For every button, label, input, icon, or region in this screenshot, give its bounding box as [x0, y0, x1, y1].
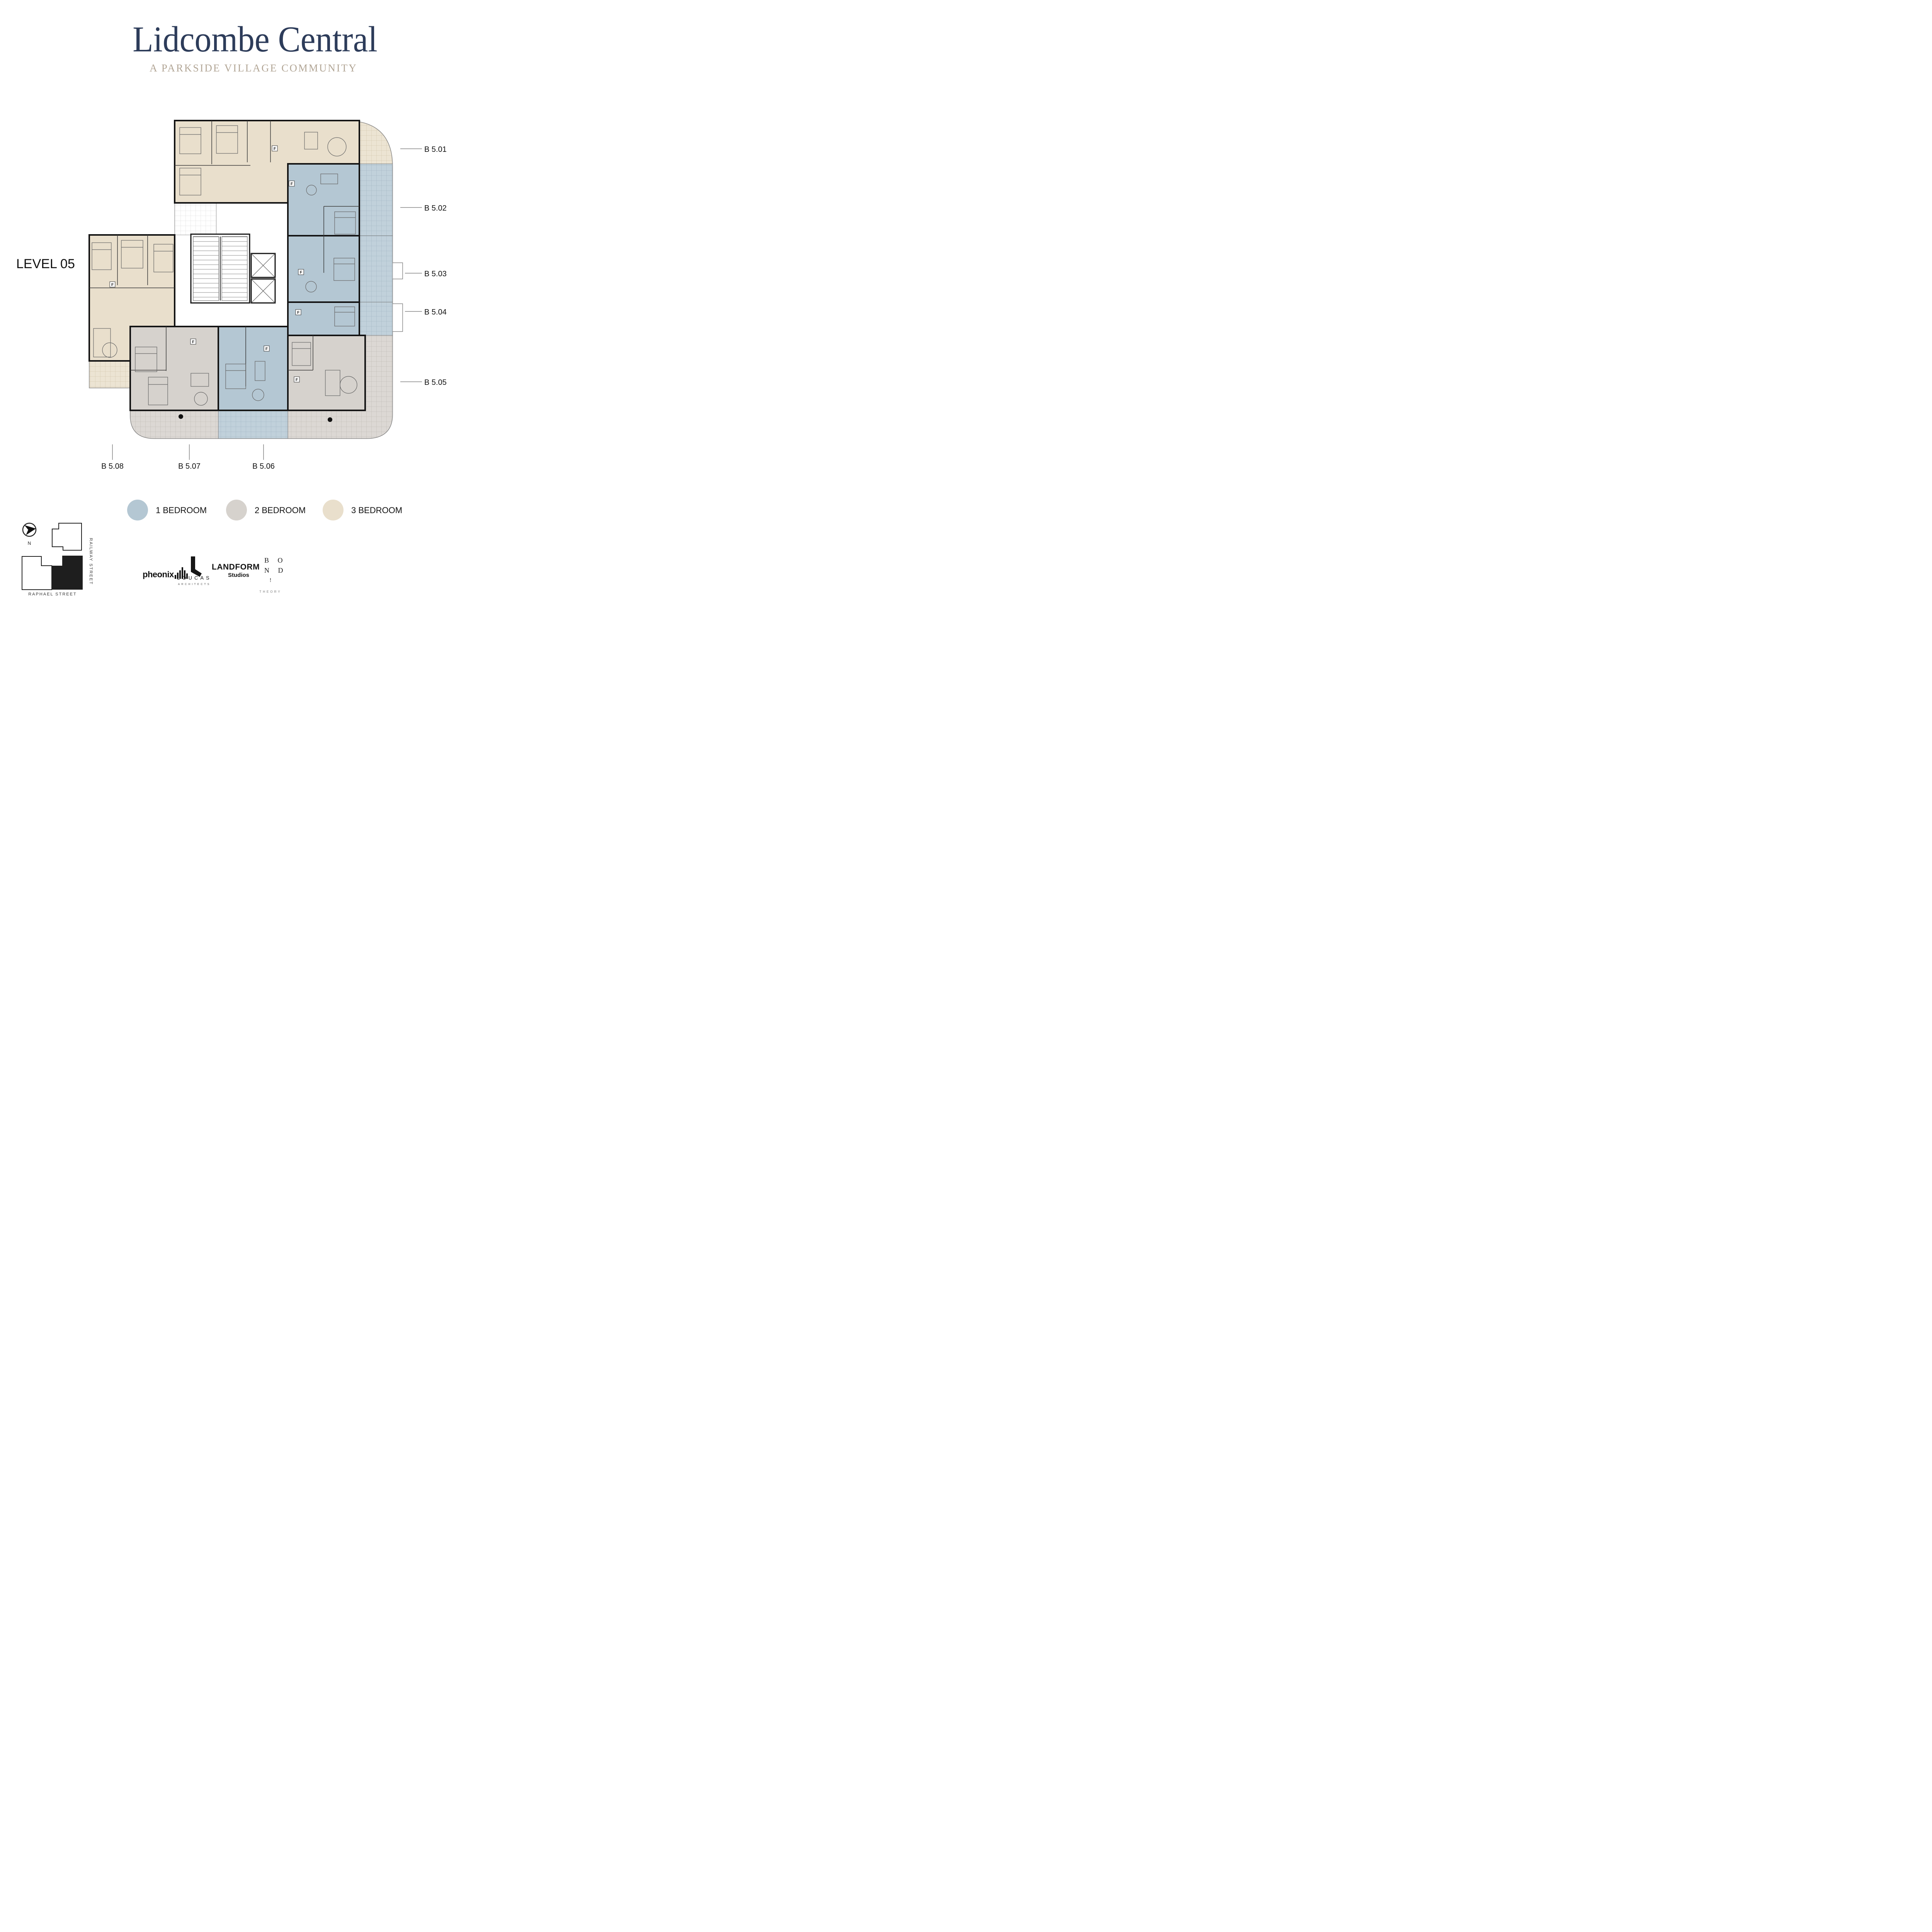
terrace-white	[175, 203, 216, 235]
f-marker: F	[298, 269, 304, 275]
street-label-raphael: RAPHAEL STREET	[28, 592, 77, 597]
balcony-b5-04	[359, 302, 393, 335]
column-dot	[179, 414, 183, 419]
loucas-l-icon	[191, 556, 202, 577]
legend-swatch-2-bedroom	[226, 500, 247, 520]
balcony-b5-02	[359, 164, 393, 236]
sitemap-building-left	[22, 556, 52, 590]
street-label-railway: RAILWAY STREET	[88, 538, 93, 585]
f-marker: F	[190, 339, 196, 344]
loucas-subtitle: ARCHITECTS	[178, 583, 211, 586]
page-title: Lidcombe Central	[133, 19, 377, 60]
f-marker: F	[110, 282, 115, 287]
pheonix-wordmark: pheonix	[143, 570, 174, 579]
svg-text:F: F	[265, 347, 268, 351]
svg-text:F: F	[192, 340, 194, 344]
unit-label-b5-06: B 5.06	[252, 462, 275, 471]
f-marker: F	[264, 346, 269, 351]
svg-text:F: F	[111, 283, 114, 287]
f-marker: F	[272, 146, 277, 151]
sitemap-building-top	[52, 523, 82, 550]
sitemap-building-subject	[52, 556, 83, 590]
unit-label-b5-08: B 5.08	[101, 462, 124, 471]
unit-label-b5-01: B 5.01	[424, 145, 447, 154]
f-marker: F	[294, 377, 299, 382]
balcony-b5-07	[130, 410, 218, 439]
loucas-name: LOUCAS	[177, 575, 211, 581]
column-dot	[328, 417, 332, 422]
unit-label-b5-07: B 5.07	[178, 462, 201, 471]
unit-b5-05-shape	[288, 335, 365, 410]
bond-row1: B O	[264, 556, 286, 564]
brochure-page: Lidcombe Central A PARKSIDE VILLAGE COMM…	[0, 0, 517, 600]
bond-theory-label: THEORY	[259, 590, 281, 594]
legend-label-1-bedroom: 1 BEDROOM	[156, 505, 207, 515]
svg-text:F: F	[297, 311, 299, 315]
balcony-b5-08	[89, 361, 130, 388]
logo-strip: pheonix LOUCAS ARCHITECTS LANDFORM Studi…	[143, 556, 287, 594]
north-label: N	[28, 541, 31, 546]
f-marker: F	[296, 310, 301, 315]
legend: 1 BEDROOM 2 BEDROOM 3 BEDROOM	[127, 500, 402, 520]
landform-subtitle: Studios	[228, 572, 249, 578]
unit-label-b5-02: B 5.02	[424, 204, 447, 213]
balcony-b5-06	[218, 410, 288, 439]
svg-text:F: F	[300, 270, 302, 275]
f-marker: F	[289, 181, 294, 186]
balcony-b5-03	[359, 236, 393, 302]
unit-label-b5-04: B 5.04	[424, 308, 447, 316]
floor-plan: F F F F F F F F LEVEL 05 B 5.01 B 5.02 B…	[16, 121, 447, 471]
legend-swatch-3-bedroom	[323, 500, 344, 520]
site-map: N RAILWAY STREET RAPHAEL STREET	[22, 523, 93, 597]
bond-row2: N D	[264, 566, 287, 574]
unit-label-b5-05: B 5.05	[424, 378, 447, 387]
unit-b5-07-shape	[130, 327, 218, 410]
bond-theory-logo: B O N D ! THEORY	[259, 556, 286, 594]
level-label: LEVEL 05	[16, 257, 75, 271]
landform-name: LANDFORM	[212, 563, 260, 571]
unit-b5-04-shape	[288, 302, 359, 335]
svg-text:F: F	[274, 147, 276, 151]
legend-swatch-1-bedroom	[127, 500, 148, 520]
bond-exclamation: !	[270, 577, 272, 583]
unit-label-b5-03: B 5.03	[424, 270, 447, 278]
page-subtitle: A PARKSIDE VILLAGE COMMUNITY	[150, 62, 357, 74]
header: Lidcombe Central A PARKSIDE VILLAGE COMM…	[133, 19, 377, 74]
page-canvas: Lidcombe Central A PARKSIDE VILLAGE COMM…	[0, 0, 517, 600]
legend-label-2-bedroom: 2 BEDROOM	[255, 505, 306, 515]
legend-label-3-bedroom: 3 BEDROOM	[351, 505, 402, 515]
svg-text:F: F	[291, 182, 293, 186]
landform-logo: LANDFORM Studios	[212, 563, 260, 578]
svg-text:F: F	[296, 378, 298, 382]
